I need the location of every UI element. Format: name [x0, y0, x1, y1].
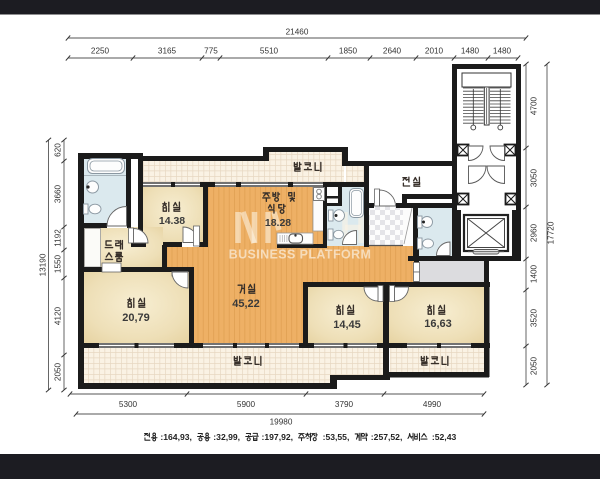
svg-text:17720: 17720	[547, 221, 556, 244]
svg-text:5510: 5510	[260, 47, 279, 56]
svg-text:45,22: 45,22	[232, 298, 260, 310]
svg-text:4700: 4700	[530, 96, 539, 115]
svg-text:14.38: 14.38	[159, 215, 185, 227]
svg-text::32,99,: :32,99,	[213, 432, 240, 442]
svg-text:16,63: 16,63	[424, 318, 452, 330]
svg-text:3520: 3520	[530, 308, 539, 327]
svg-text:13190: 13190	[39, 253, 48, 276]
svg-text:1400: 1400	[530, 264, 539, 283]
svg-text:775: 775	[204, 47, 218, 56]
svg-text:1192: 1192	[54, 229, 63, 247]
svg-text:19980: 19980	[270, 418, 293, 427]
svg-text:21460: 21460	[286, 28, 309, 37]
svg-text::257,52,: :257,52,	[371, 432, 403, 442]
svg-text:1480: 1480	[493, 47, 512, 56]
svg-text:20,79: 20,79	[122, 312, 150, 324]
svg-text:1550: 1550	[54, 254, 63, 273]
svg-text:3790: 3790	[335, 400, 354, 409]
svg-text:1480: 1480	[461, 47, 480, 56]
svg-text:14,45: 14,45	[333, 319, 361, 331]
svg-text:5900: 5900	[237, 400, 256, 409]
svg-text:2050: 2050	[54, 362, 63, 381]
svg-text:18.28: 18.28	[265, 217, 291, 229]
svg-text::197,92,: :197,92,	[262, 432, 294, 442]
svg-text:4120: 4120	[54, 306, 63, 325]
svg-text:2010: 2010	[425, 47, 444, 56]
svg-text:3050: 3050	[530, 168, 539, 187]
svg-text:BUSINESS PLATFORM: BUSINESS PLATFORM	[229, 248, 372, 262]
svg-text::53,55,: :53,55,	[323, 432, 350, 442]
svg-text:3165: 3165	[158, 47, 177, 56]
svg-text:2050: 2050	[530, 356, 539, 375]
svg-text::52,43: :52,43	[432, 432, 457, 442]
svg-text:1850: 1850	[339, 47, 358, 56]
svg-text:2640: 2640	[383, 47, 402, 56]
svg-text::164,93,: :164,93,	[160, 432, 192, 442]
svg-text:4990: 4990	[423, 400, 442, 409]
svg-text:2960: 2960	[530, 223, 539, 242]
svg-text:620: 620	[54, 143, 63, 157]
svg-text:5300: 5300	[119, 400, 138, 409]
svg-text:2250: 2250	[91, 47, 110, 56]
svg-text:3660: 3660	[54, 184, 63, 203]
